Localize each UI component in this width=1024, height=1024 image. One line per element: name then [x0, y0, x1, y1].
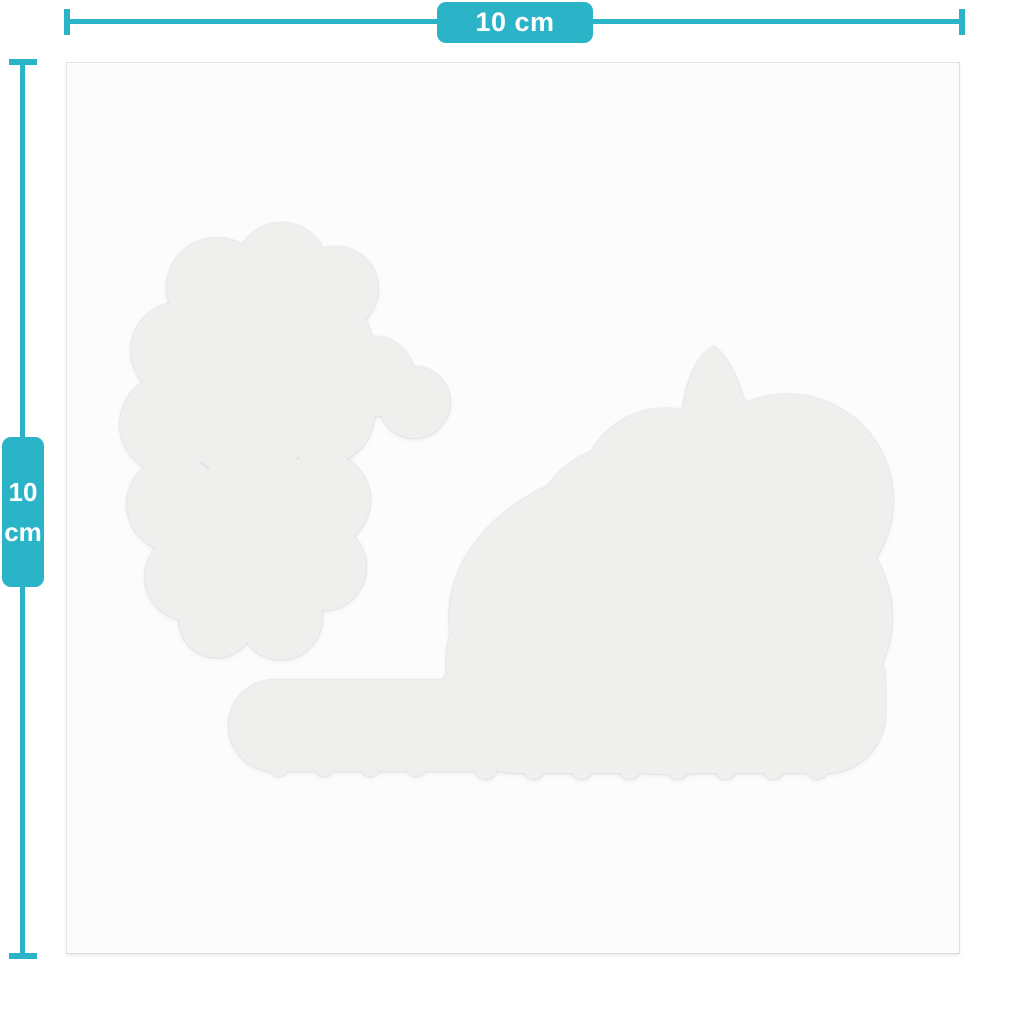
lying-cat-sticker-silhouette-icon — [67, 63, 959, 953]
height-measure-tick-top — [9, 59, 37, 65]
cat-silhouette-shape — [120, 223, 893, 780]
height-measure-tick-bottom — [9, 953, 37, 959]
height-dimension-label: 10 cm — [2, 437, 44, 587]
width-dimension-label: 10 cm — [437, 2, 593, 43]
width-measure-tick-right — [959, 9, 965, 35]
height-unit: cm — [4, 512, 42, 552]
dimension-diagram: 10 cm 10 cm — [0, 0, 1024, 1024]
sticker-sheet-card — [66, 62, 960, 954]
width-measure-tick-left — [64, 9, 70, 35]
height-value: 10 — [9, 472, 38, 512]
